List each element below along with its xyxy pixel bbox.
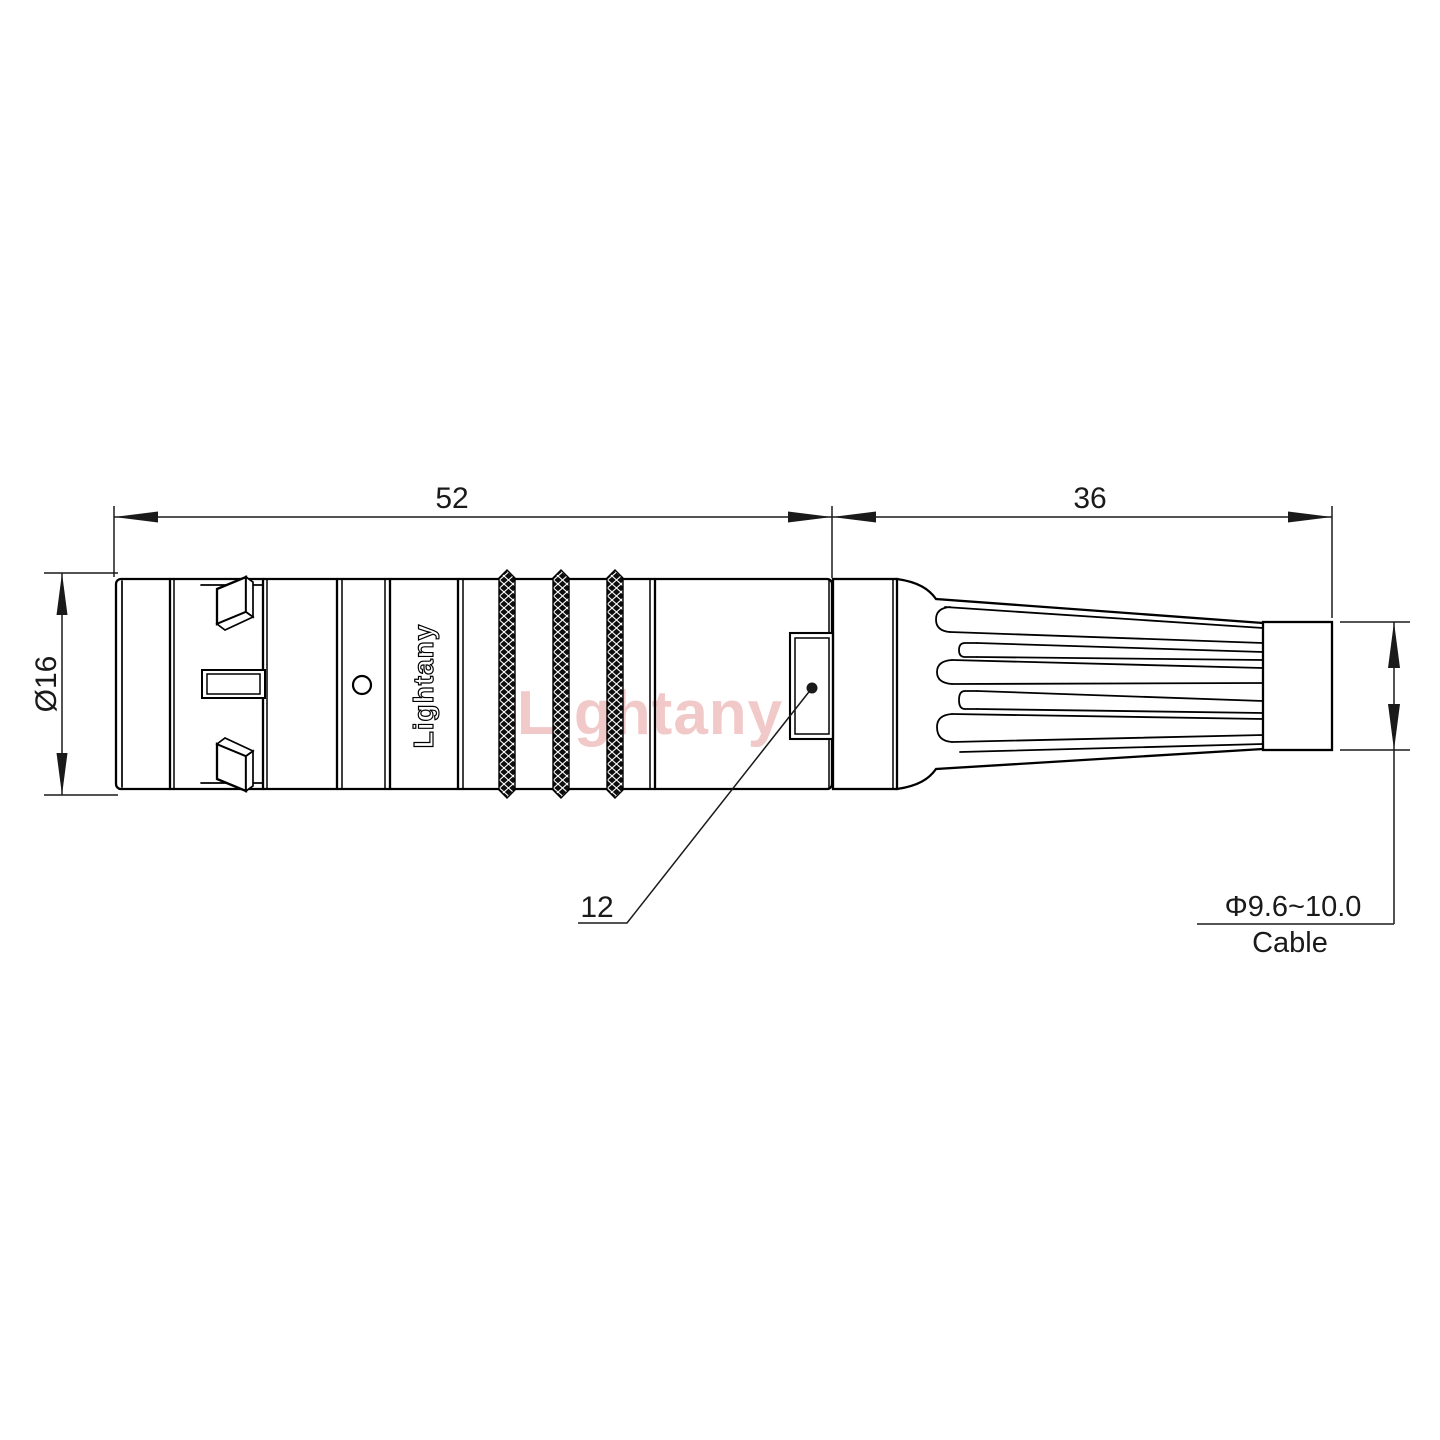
cable-sleeve [1263,622,1332,750]
dim-shell-diameter-label: Ø16 [30,656,63,713]
drawing-canvas: Lightany [0,0,1440,1440]
dimension-52 [114,506,832,578]
shell-logo-text: Lightany [408,624,439,749]
dim-front-length-label: 52 [435,482,468,515]
dim-cable-range-label: Φ9.6~10.0 [1225,891,1362,923]
collar-hole [353,676,371,694]
dim-cable-word-label: Cable [1252,927,1328,959]
dim-rear-length-label: 36 [1073,482,1106,515]
connector-drawing: Lightany [0,0,1440,1440]
dim-flat-size-label: 12 [580,891,613,924]
key-slot [202,670,265,698]
leader-dot [807,683,818,694]
